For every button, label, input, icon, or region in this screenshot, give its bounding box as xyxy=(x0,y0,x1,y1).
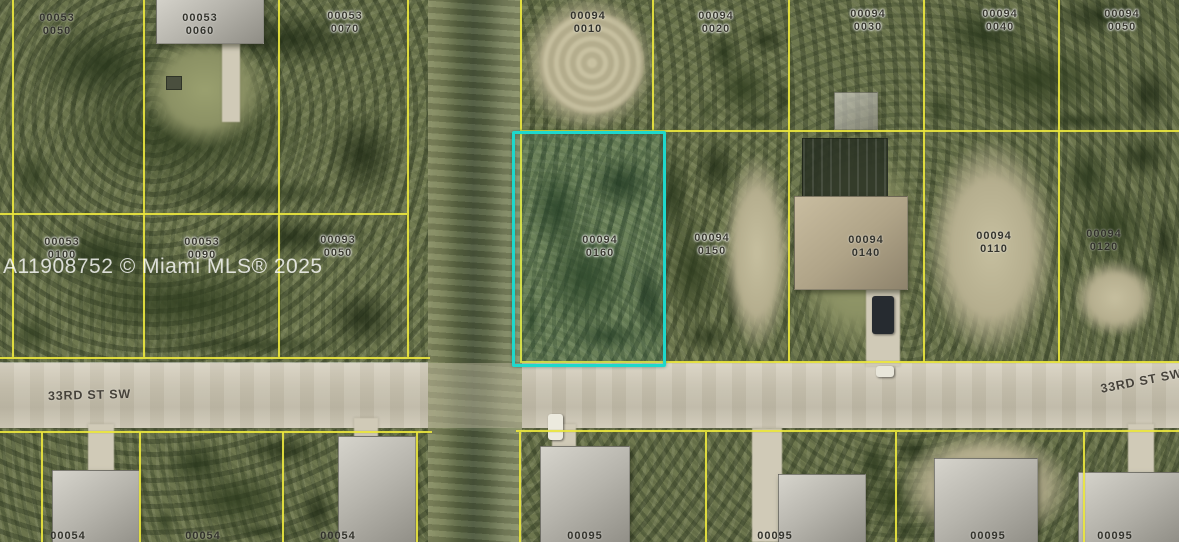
car xyxy=(872,296,894,334)
parcel-label: 000940050 xyxy=(1087,8,1157,34)
parcel-line xyxy=(895,432,897,542)
parcel-lot: 0050 xyxy=(22,25,92,38)
parcel-line xyxy=(1058,0,1060,362)
parcel-label: 000940020 xyxy=(681,10,751,36)
parcel-lot: 0110 xyxy=(959,243,1029,256)
parcel-label: 000940010 xyxy=(553,10,623,36)
parcel-label: 000530070 xyxy=(310,10,380,36)
house xyxy=(834,92,878,130)
parcel-line xyxy=(41,432,43,542)
parcel-line xyxy=(788,0,790,362)
parcel-line xyxy=(0,213,407,215)
parcel-label: 000530060 xyxy=(165,12,235,38)
car xyxy=(548,414,563,440)
parcel-block: 00053 xyxy=(165,12,235,25)
parcel-line xyxy=(519,432,521,542)
parcel-block: 00094 xyxy=(681,10,751,23)
tree-cover-bottom-left xyxy=(150,430,340,542)
parcel-line xyxy=(0,431,432,433)
parcel-line xyxy=(143,0,145,357)
parcel-label: 000940140 xyxy=(831,234,901,260)
parcel-block: 00094 xyxy=(831,234,901,247)
parcel-block: 00053 xyxy=(310,10,380,23)
parcel-line xyxy=(407,0,409,357)
parcel-lot: 0160 xyxy=(565,247,635,260)
parcel-line xyxy=(652,0,654,132)
parcel-lot: 0120 xyxy=(1069,241,1139,254)
parcel-line xyxy=(12,0,14,357)
parcel-block: 00094 xyxy=(553,10,623,23)
parcel-block: 00053 xyxy=(27,236,97,249)
canal xyxy=(428,0,522,542)
pool-enclosure xyxy=(802,138,888,198)
parcel-block: 00094 xyxy=(833,8,903,21)
mls-watermark: A11908752 © Miami MLS® 2025 xyxy=(3,255,323,279)
parcel-block: 00094 xyxy=(959,230,1029,243)
driveway xyxy=(222,42,240,122)
driveway xyxy=(354,418,378,438)
parcel-lot: 0060 xyxy=(165,25,235,38)
parcel-label: 000940150 xyxy=(677,232,747,258)
parcel-label: 000940120 xyxy=(1069,228,1139,254)
parcel-lot: 0150 xyxy=(677,245,747,258)
sand-circle xyxy=(1072,258,1158,338)
parcel-block: 00093 xyxy=(303,234,373,247)
parcel-label-partial: 00095 xyxy=(958,530,1018,542)
parcel-lot: 0040 xyxy=(965,21,1035,34)
tree-cover-left-mid xyxy=(0,210,412,360)
parcel-line xyxy=(282,432,284,542)
street-east-segment xyxy=(522,363,1179,428)
car xyxy=(876,366,894,377)
parcel-line xyxy=(139,432,141,542)
parcel-block: 00094 xyxy=(1087,8,1157,21)
parcel-lot: 0010 xyxy=(553,23,623,36)
parcel-block: 00053 xyxy=(22,12,92,25)
parcel-line xyxy=(923,0,925,362)
parcel-line xyxy=(516,430,1179,432)
parcel-label-partial: 00054 xyxy=(308,530,368,542)
parcel-lot: 0140 xyxy=(831,247,901,260)
parcel-lot: 0020 xyxy=(681,23,751,36)
parcel-label: 000940030 xyxy=(833,8,903,34)
parcel-label: 000940040 xyxy=(965,8,1035,34)
parcel-label-partial: 00054 xyxy=(173,530,233,542)
parcel-line xyxy=(1083,432,1085,542)
parcel-lot: 0030 xyxy=(833,21,903,34)
house xyxy=(338,436,416,542)
parcel-lot: 0050 xyxy=(1087,21,1157,34)
street-name-label-left: 33RD ST SW xyxy=(48,387,131,403)
parcel-block: 00094 xyxy=(965,8,1035,21)
parcel-label-partial: 00095 xyxy=(555,530,615,542)
aerial-photo-background: 000530050 000530060 000530070 000530100 … xyxy=(0,0,1179,542)
parcel-lot: 0070 xyxy=(310,23,380,36)
house xyxy=(540,446,630,542)
parcel-label: 000940110 xyxy=(959,230,1029,256)
parcel-label-partial: 00095 xyxy=(745,530,805,542)
parcel-line xyxy=(416,432,418,542)
subject-parcel-label: 000940160 xyxy=(565,234,635,260)
lawn-top-left-lot xyxy=(140,30,270,150)
parcel-line xyxy=(278,0,280,357)
parcel-block: 00094 xyxy=(677,232,747,245)
mls-aerial-map-image: 000530050 000530060 000530070 000530100 … xyxy=(0,0,1179,542)
parcel-line xyxy=(0,357,430,359)
parcel-block: 00094 xyxy=(1069,228,1139,241)
parcel-block: 00053 xyxy=(167,236,237,249)
canal-street-crossing xyxy=(428,363,522,428)
parcel-block: 00094 xyxy=(565,234,635,247)
parcel-label-partial: 00095 xyxy=(1085,530,1145,542)
tree-cluster-top-mid xyxy=(700,20,795,130)
shed xyxy=(166,76,182,90)
parcel-label-partial: 00054 xyxy=(38,530,98,542)
parcel-line xyxy=(705,432,707,542)
parcel-label: 000530050 xyxy=(22,12,92,38)
